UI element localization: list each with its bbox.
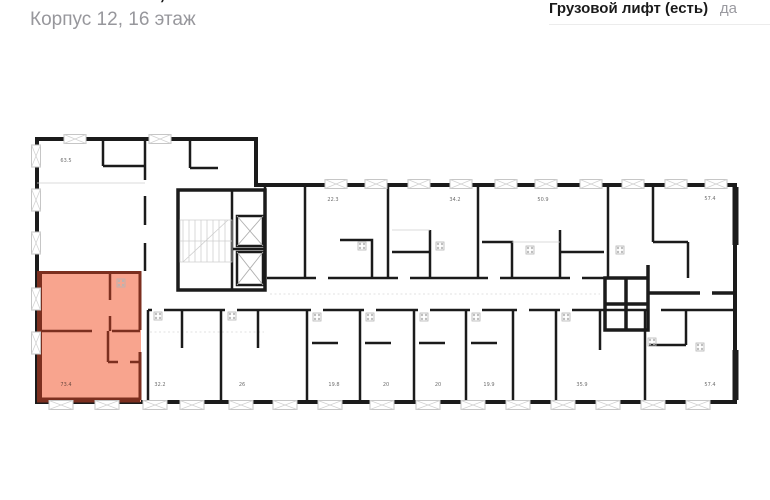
window-icon [370,401,394,410]
window-icon [325,180,347,189]
floor-plan-svg: 63.522.334.250.957.432.22619.8202019.935… [0,0,770,500]
window-icon [95,401,119,410]
window-icon [506,401,530,410]
window-icon [450,180,472,189]
window-icon [32,332,41,354]
window-icon [495,180,517,189]
window-icon [32,189,41,211]
window-icon [535,180,557,189]
window-icon [273,401,297,410]
apartment-area-label: 32.2 [154,382,165,388]
apartment-area-label: 57.4 [704,382,715,388]
apartment-area-label: 73.4 [60,382,71,388]
window-icon [49,401,73,410]
apartment-area-label: 26 [239,382,245,388]
window-icon [665,180,687,189]
apartment-area-label: 19.8 [328,382,339,388]
window-icon [641,401,665,410]
window-icon [32,288,41,310]
window-icon [365,180,387,189]
window-icon [180,401,204,410]
apartment-area-label: 22.3 [327,197,338,203]
apartment-area-label: 20 [435,382,441,388]
window-icon [32,232,41,254]
apartment-area-label: 20 [383,382,389,388]
floor-plan: 63.522.334.250.957.432.22619.8202019.935… [0,0,770,500]
window-icon [461,401,485,410]
window-icon [408,180,430,189]
apartment-area-label: 50.9 [537,197,548,203]
window-icon [416,401,440,410]
apartment-area-label: 35.9 [576,382,587,388]
window-icon [318,401,342,410]
apartment-area-label: 34.2 [449,197,460,203]
window-icon [143,401,167,410]
apartment-area-label: 19.9 [483,382,494,388]
window-icon [64,135,86,144]
window-icon [596,401,620,410]
window-icon [229,401,253,410]
apartment-area-label: 57.4 [704,196,715,202]
apartment-area-label: 63.5 [60,158,71,164]
building-outline [37,139,735,402]
window-icon [622,180,644,189]
window-icon [551,401,575,410]
window-icon [686,401,710,410]
window-icon [580,180,602,189]
window-icon [149,135,171,144]
window-icon [705,180,727,189]
window-icon [32,145,41,167]
apartment-highlighted[interactable] [37,271,141,402]
